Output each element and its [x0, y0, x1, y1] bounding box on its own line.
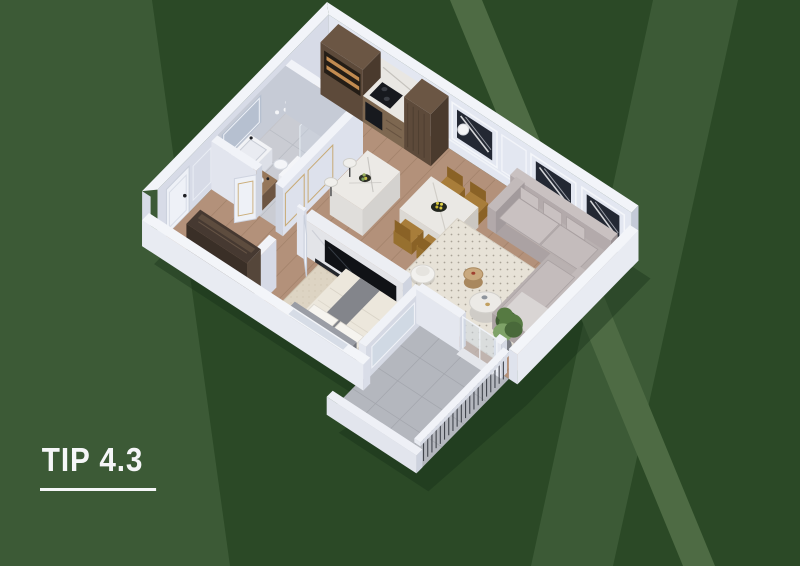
poster: TIP 4.3 [0, 0, 800, 566]
apartment-scene [142, 2, 650, 491]
plan-title: TIP 4.3 [40, 441, 156, 491]
